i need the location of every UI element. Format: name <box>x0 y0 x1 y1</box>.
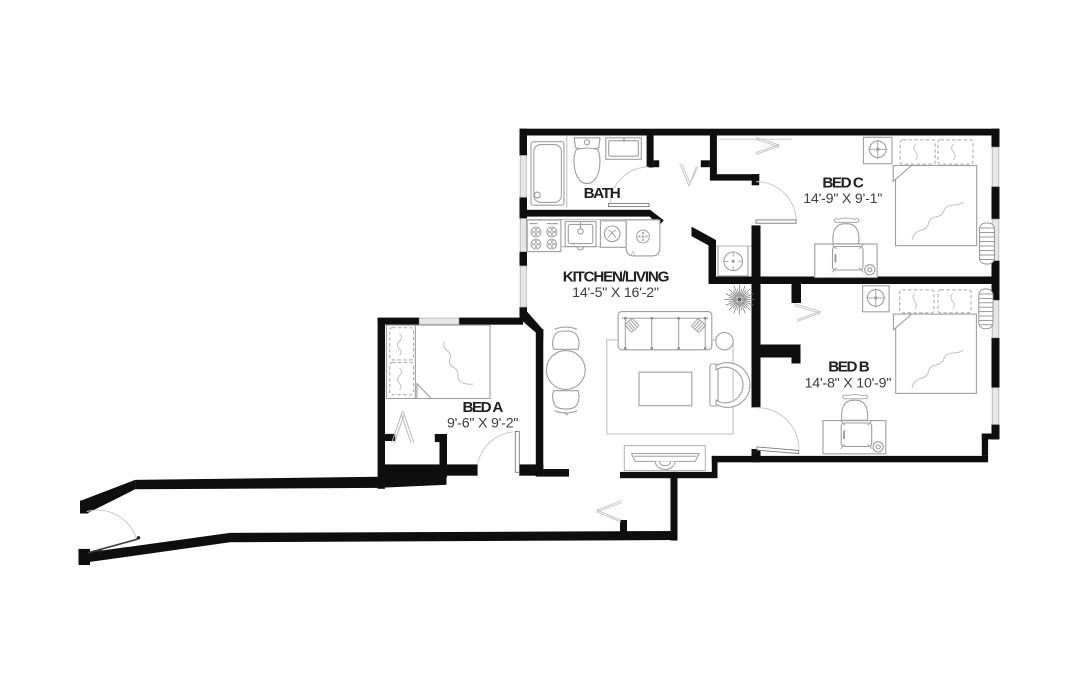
svg-text:BED B: BED B <box>828 359 869 376</box>
svg-text:BED A: BED A <box>462 399 503 416</box>
svg-text:14'-8" X 10'-9": 14'-8" X 10'-9" <box>805 376 892 392</box>
svg-text:9'-6" X 9'-2": 9'-6" X 9'-2" <box>447 416 518 432</box>
svg-text:KITCHEN/LIVING: KITCHEN/LIVING <box>563 269 669 286</box>
svg-text:BED C: BED C <box>822 174 863 191</box>
svg-text:BATH: BATH <box>584 185 620 202</box>
svg-text:14'-9" X 9'-1": 14'-9" X 9'-1" <box>803 191 882 207</box>
svg-text:14'-5" X 16'-2": 14'-5" X 16'-2" <box>572 285 659 301</box>
